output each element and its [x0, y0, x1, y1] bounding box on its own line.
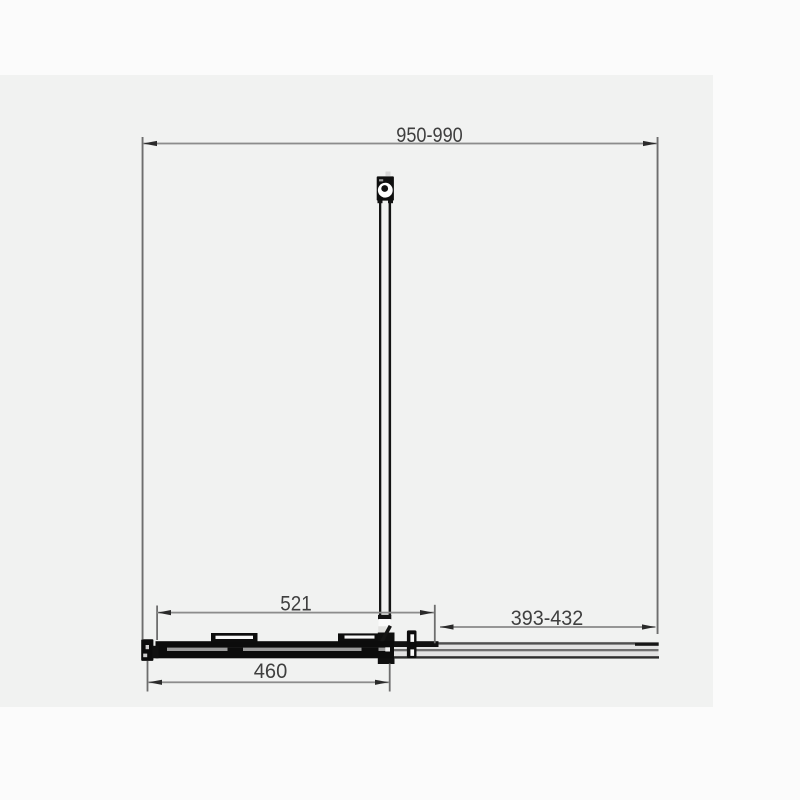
svg-text:460: 460: [254, 659, 288, 683]
svg-text:393-432: 393-432: [511, 606, 584, 630]
svg-text:521: 521: [280, 592, 312, 616]
svg-text:950-990: 950-990: [396, 123, 463, 147]
